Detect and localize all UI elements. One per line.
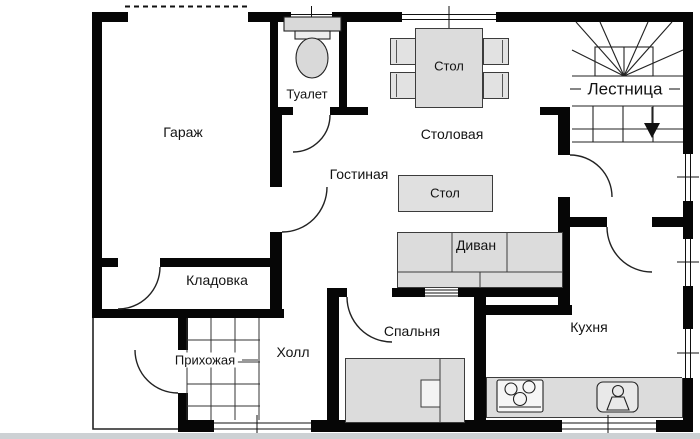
wall-entry-a — [178, 318, 188, 350]
wall-toilet-bottom-a — [270, 107, 293, 115]
label-storage: Кладовка — [186, 273, 248, 287]
label-living-room: Гостиная — [330, 167, 389, 181]
label-toilet: Туалет — [286, 88, 327, 101]
label-stairs: Лестница — [585, 80, 666, 99]
label-sofa: Диван — [456, 238, 496, 252]
wall-top-main — [248, 12, 693, 22]
wall-storage-top-b — [160, 258, 282, 267]
wall-stairs-left-a — [558, 107, 570, 155]
wall-storage-top-a — [92, 258, 118, 267]
wall-toilet-right — [339, 12, 347, 115]
wall-hall-bedroom — [327, 288, 339, 420]
wall-left — [92, 12, 102, 318]
stair-hall-door-arc — [570, 155, 612, 197]
porch-outline — [93, 318, 178, 429]
kitchen-door-arc — [607, 227, 652, 272]
entry-floor-grid — [187, 318, 260, 420]
label-dining-room: Столовая — [421, 127, 484, 141]
toilet-door-arc — [293, 115, 330, 152]
wall-toilet-bottom-b — [330, 107, 368, 115]
wall-right — [683, 12, 693, 432]
wall-storage-bottom — [92, 309, 284, 318]
toilet-fixture — [284, 17, 341, 78]
door-arcs — [118, 115, 652, 393]
wall-kitchen-topright-b — [652, 217, 683, 227]
bottom-strip — [0, 433, 700, 439]
kitchen-counter — [486, 377, 683, 418]
wall-toilet-left — [270, 12, 278, 115]
floor-plan: Гараж Туалет Столовая Гостиная Лестница … — [0, 0, 700, 439]
chair — [483, 72, 509, 99]
label-hall: Холл — [277, 345, 310, 359]
label-dining-table: Стол — [434, 60, 464, 73]
wall-bedroom-stub — [327, 288, 347, 297]
bed — [345, 358, 465, 423]
wall-kitchen-topright-a — [558, 217, 607, 227]
garage-door-arc — [282, 187, 327, 232]
chair — [483, 38, 509, 65]
wall-garage-right-b — [270, 232, 282, 318]
wall-sofa — [392, 288, 563, 297]
wall-garage-right-a — [270, 115, 282, 187]
chair — [390, 38, 416, 65]
label-kitchen: Кухня — [570, 320, 607, 334]
label-entry-hall: Прихожая — [172, 353, 238, 368]
label-bedroom: Спальня — [384, 324, 440, 338]
wall-kitchen-topleft — [474, 305, 572, 315]
storage-door-arc — [118, 267, 160, 309]
chair — [390, 72, 416, 99]
wall-bedroom-kitchen — [474, 297, 486, 420]
stair-arrow-head — [644, 123, 660, 138]
label-coffee-table: Стол — [430, 187, 460, 200]
wall-entry-b — [178, 393, 188, 420]
label-garage: Гараж — [163, 125, 203, 139]
